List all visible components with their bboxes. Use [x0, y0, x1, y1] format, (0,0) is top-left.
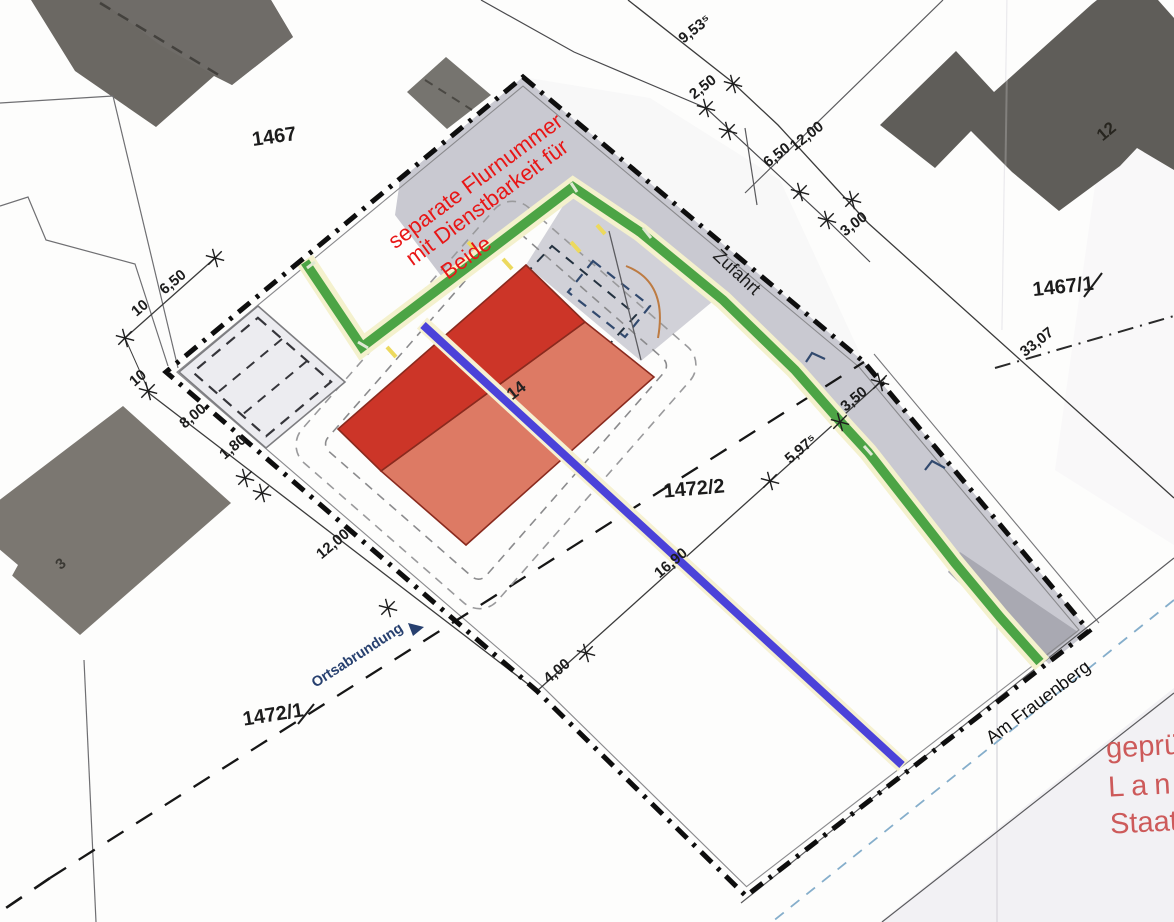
svg-text:Lan: Lan: [1107, 768, 1174, 804]
svg-text:Staat: Staat: [1109, 805, 1174, 841]
svg-text:geprü: geprü: [1105, 729, 1174, 765]
